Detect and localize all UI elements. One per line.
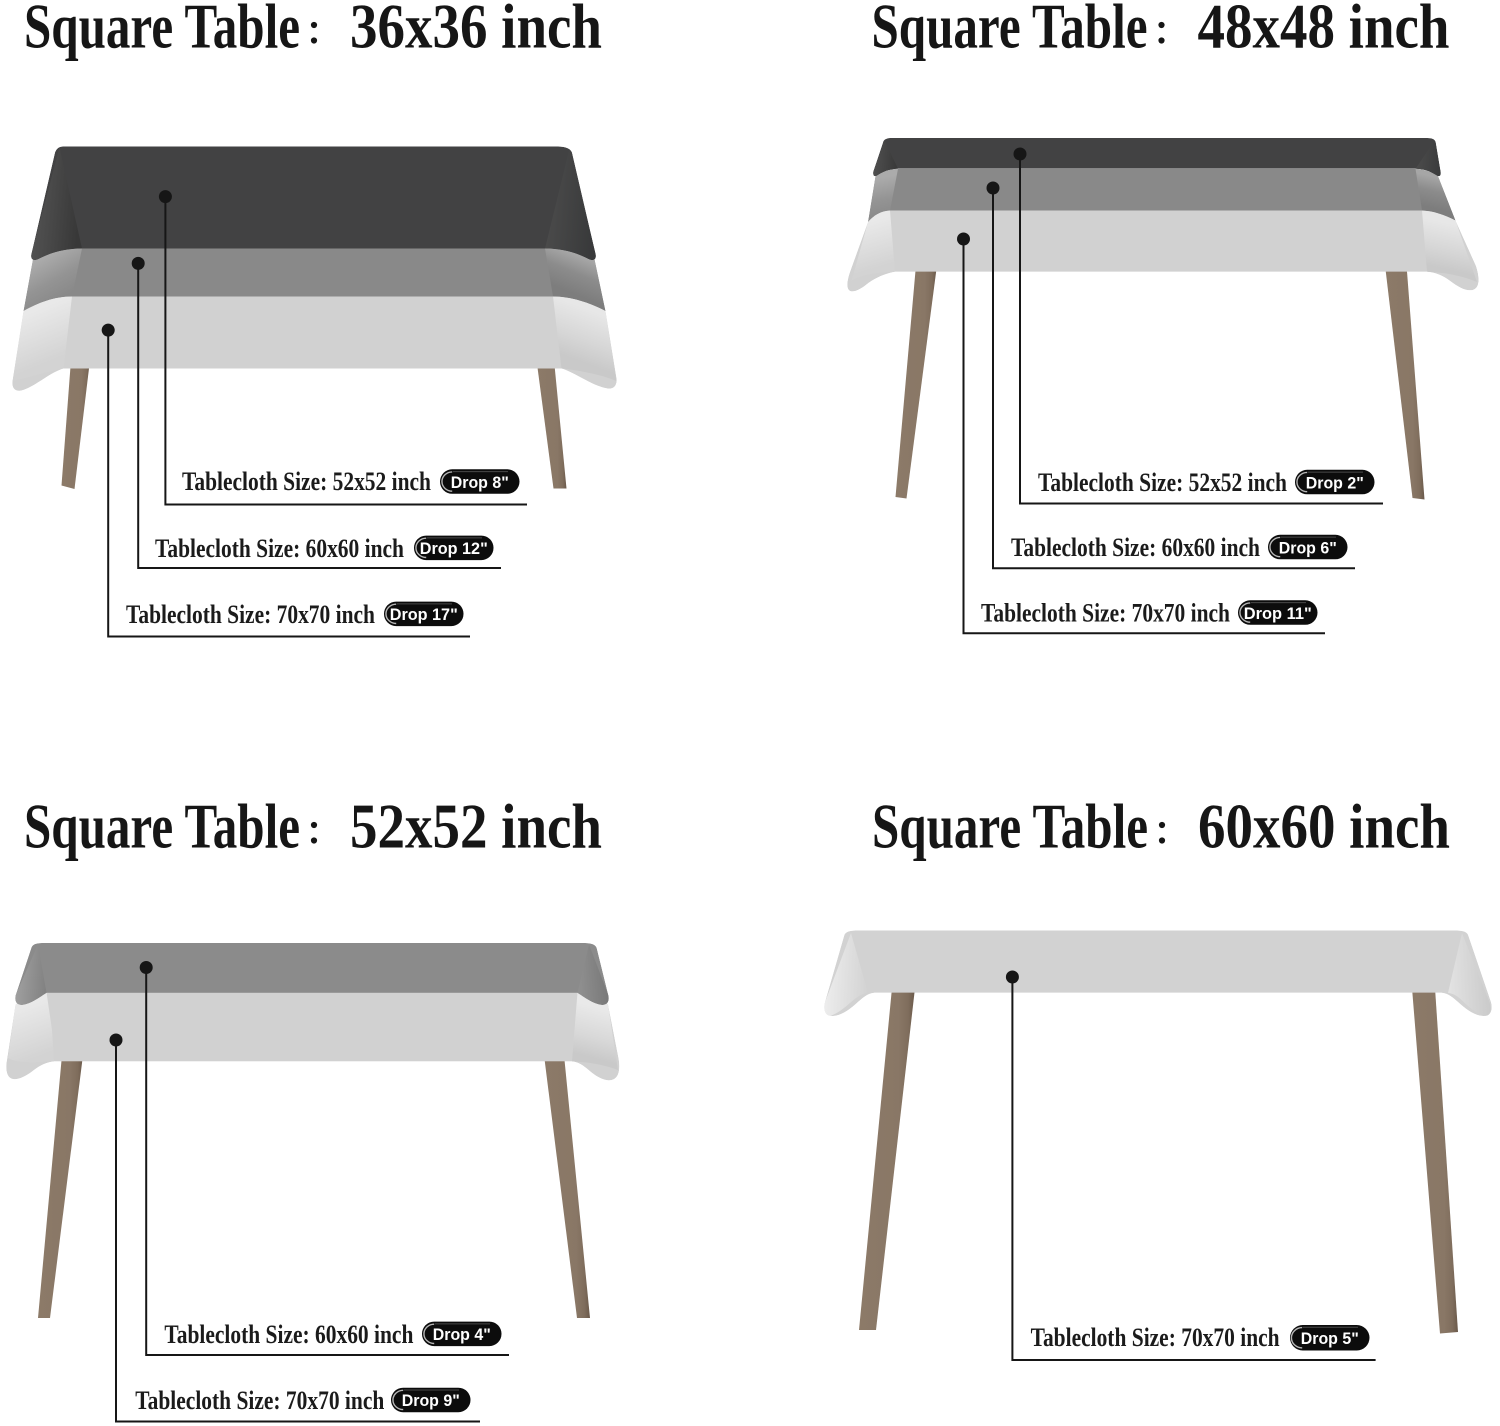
svg-text:Tablecloth Size: 52x52 inch: Tablecloth Size: 52x52 inch [1038, 468, 1287, 497]
svg-text:Square Table: Square Table [872, 792, 1148, 862]
svg-text:Square Table: Square Table [872, 0, 1148, 62]
svg-text:Tablecloth Size: 52x52 inch: Tablecloth Size: 52x52 inch [182, 467, 431, 496]
svg-text:Drop 4": Drop 4" [433, 1325, 491, 1344]
svg-text:Tablecloth Size: 60x60 inch: Tablecloth Size: 60x60 inch [1011, 533, 1260, 562]
svg-text:Tablecloth Size: 70x70 inch: Tablecloth Size: 70x70 inch [981, 599, 1230, 628]
svg-text:52x52 inch: 52x52 inch [350, 792, 602, 862]
svg-text:48x48 inch: 48x48 inch [1198, 0, 1450, 62]
svg-text:Drop 6": Drop 6" [1279, 538, 1337, 557]
svg-text:Drop 2": Drop 2" [1306, 473, 1364, 492]
svg-text:Tablecloth Size: 70x70 inch: Tablecloth Size: 70x70 inch [1031, 1323, 1280, 1352]
svg-text:Tablecloth Size: 60x60 inch: Tablecloth Size: 60x60 inch [155, 534, 404, 563]
svg-text:Drop 12": Drop 12" [420, 539, 488, 558]
svg-text:36x36 inch: 36x36 inch [350, 0, 602, 62]
svg-text:Tablecloth Size: 70x70 inch: Tablecloth Size: 70x70 inch [135, 1386, 384, 1415]
svg-text:Drop 11": Drop 11" [1244, 604, 1312, 623]
svg-text:Square Table: Square Table [24, 0, 300, 62]
svg-text:Drop 9": Drop 9" [402, 1391, 460, 1410]
svg-text:60x60 inch: 60x60 inch [1198, 792, 1450, 862]
svg-text:Square Table: Square Table [24, 792, 300, 862]
svg-text:Drop 17": Drop 17" [390, 605, 458, 624]
svg-text:Drop 5": Drop 5" [1301, 1329, 1359, 1348]
svg-text:Tablecloth Size: 70x70 inch: Tablecloth Size: 70x70 inch [126, 600, 375, 629]
svg-text:Drop 8": Drop 8" [451, 473, 509, 492]
svg-text:Tablecloth Size: 60x60 inch: Tablecloth Size: 60x60 inch [164, 1320, 413, 1349]
